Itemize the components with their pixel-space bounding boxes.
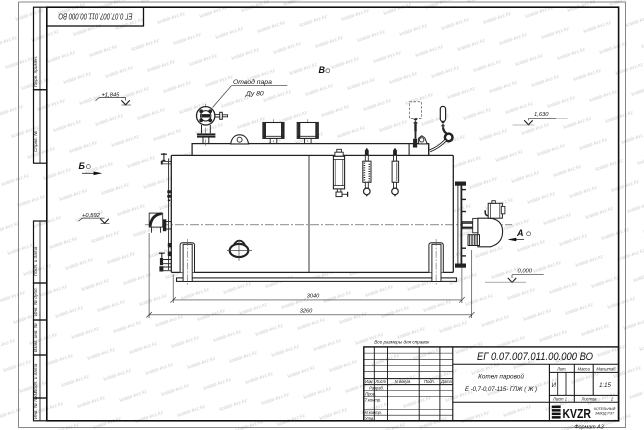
svg-text:Отвод пара: Отвод пара	[233, 78, 272, 86]
svg-text:А: А	[516, 228, 524, 238]
svg-text:Справ. №: Справ. №	[33, 131, 38, 152]
svg-text:KVZR: KVZR	[563, 406, 592, 421]
svg-text:Все размеры для справок: Все размеры для справок	[374, 339, 430, 344]
svg-text:Листов: Листов	[581, 397, 598, 402]
svg-text:Лит.: Лит.	[556, 366, 567, 371]
svg-text:N докум.: N докум.	[395, 379, 412, 384]
svg-text:Инв. № подл.: Инв. № подл.	[33, 390, 38, 419]
svg-text:Подп.: Подп.	[424, 379, 435, 384]
svg-text:Формат А3: Формат А3	[574, 424, 604, 430]
svg-text:0,000: 0,000	[518, 269, 533, 275]
svg-text:Инв. № дубл.: Инв. № дубл.	[33, 287, 38, 316]
svg-text:Подп. и дата: Подп. и дата	[33, 363, 38, 393]
svg-text:КОТЕЛЬНЫЙ: КОТЕЛЬНЫЙ	[594, 407, 616, 411]
svg-text:ЕГ 0.07.007.011.00.000 ВО: ЕГ 0.07.007.011.00.000 ВО	[59, 11, 133, 20]
svg-text:Т.контр.: Т.контр.	[365, 397, 382, 402]
svg-text:Лист: Лист	[375, 379, 387, 384]
svg-text:Взам. инв. №: Взам. инв. №	[33, 323, 38, 352]
svg-text:Е -0,7-0,07-115- ГЛЖ ( Ж ): Е -0,7-0,07-115- ГЛЖ ( Ж )	[465, 387, 537, 393]
svg-text:В: В	[319, 65, 326, 75]
svg-text:1:15: 1:15	[599, 383, 611, 389]
svg-text:Масштаб: Масштаб	[596, 366, 616, 371]
svg-text:Дата: Дата	[440, 379, 453, 384]
svg-text:Разраб.: Разраб.	[369, 385, 384, 390]
svg-text:Изм: Изм	[365, 379, 373, 384]
svg-text:1,630: 1,630	[534, 112, 549, 118]
svg-text:Ду 80: Ду 80	[245, 90, 264, 97]
svg-text:Перв. примен.: Перв. примен.	[33, 56, 38, 87]
svg-text:ЕГ 0.07.007.011.00.000 ВО: ЕГ 0.07.007.011.00.000 ВО	[477, 351, 593, 363]
svg-text:3260: 3260	[300, 309, 313, 315]
svg-text:Н.контр.: Н.контр.	[365, 410, 382, 415]
svg-text:Подп. и дата: Подп. и дата	[33, 246, 38, 276]
svg-text:И: И	[552, 383, 557, 389]
svg-text:Лист 1: Лист 1	[552, 397, 567, 402]
svg-text:Утв.: Утв.	[365, 416, 374, 421]
svg-text:ЗАВОД РЭТ: ЗАВОД РЭТ	[595, 412, 615, 416]
svg-text:Б: Б	[79, 161, 86, 171]
svg-text:Котел паровой: Котел паровой	[478, 372, 524, 380]
svg-text:3040: 3040	[307, 294, 320, 300]
svg-text:Масса: Масса	[578, 366, 591, 371]
svg-text:Пров.: Пров.	[365, 391, 376, 396]
